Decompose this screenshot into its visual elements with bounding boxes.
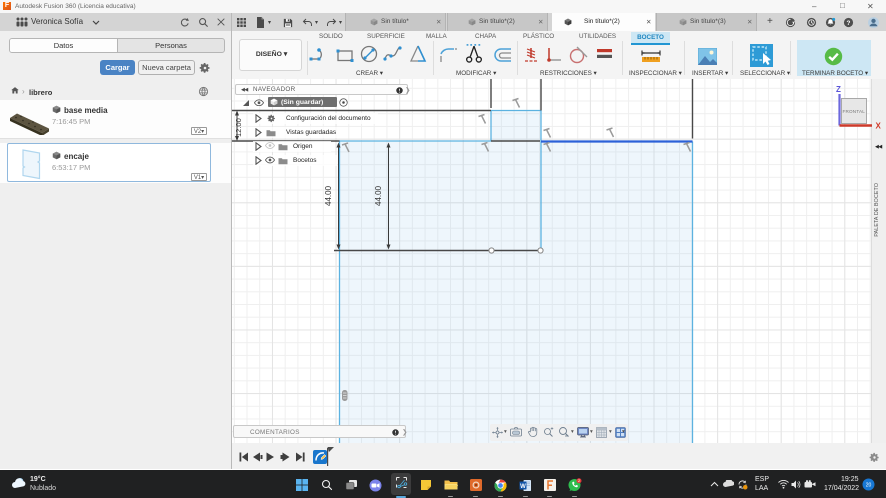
svg-text:44.00: 44.00: [324, 185, 333, 206]
svg-text:20: 20: [866, 483, 872, 489]
svg-text:Z: Z: [836, 85, 841, 94]
svg-text:12.00: 12.00: [234, 118, 243, 137]
svg-text:2: 2: [578, 479, 580, 483]
svg-text:?: ?: [847, 20, 851, 27]
svg-text:W: W: [520, 484, 526, 490]
svg-text:44.00: 44.00: [374, 185, 383, 206]
svg-text:X: X: [876, 122, 882, 131]
